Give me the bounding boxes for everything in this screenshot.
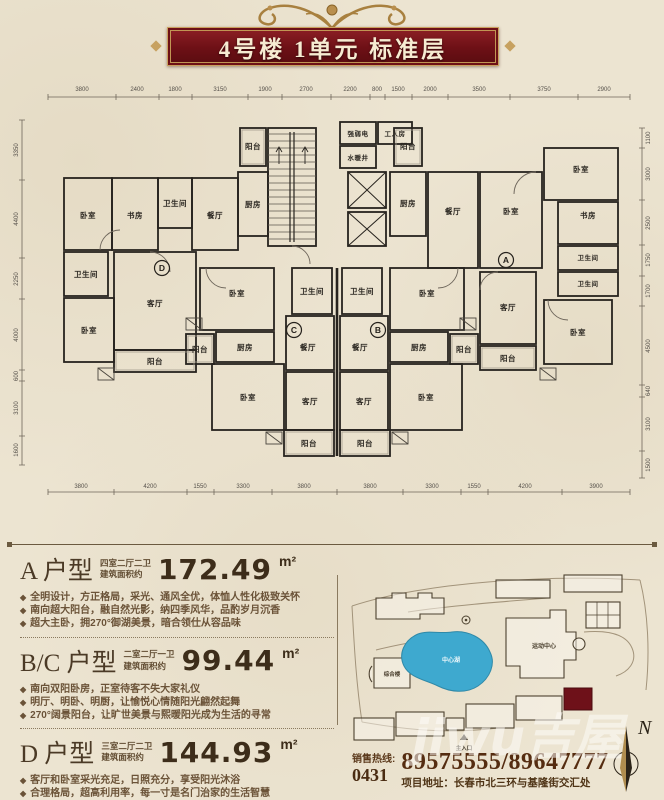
room-label-bedroom: 卧室 <box>81 325 97 335</box>
unit-spec-header: B/C 户型 二室二厅一卫 建筑面积约 99.44 m² <box>20 643 334 679</box>
unit-area-value: 144.93 <box>159 736 273 769</box>
unit-area-unit: m² <box>282 645 299 661</box>
room-label-bath: 卫生间 <box>300 286 324 296</box>
unit-spec-bc: B/C 户型 二室二厅一卫 建筑面积约 99.44 m² ◆南向双阳卧房，正室待… <box>20 643 334 723</box>
dim-label: 640 <box>646 385 652 396</box>
room-label-balcony: 阳台 <box>357 438 373 448</box>
unit-letter-c: C <box>291 325 297 335</box>
dim-label: 3800 <box>363 484 377 490</box>
unit-area-prefix: 建筑面积约 <box>124 661 175 672</box>
dim-label: 1500 <box>391 87 405 93</box>
room-label-study: 书房 <box>580 210 596 220</box>
title-banner: 4号楼 1单元 标准层 <box>167 27 499 66</box>
room-label-dining: 餐厅 <box>444 206 461 216</box>
north-label: N <box>637 717 653 739</box>
feature-item: ◆客厅和卧室采光充足，日照充分，享受阳光沐浴 <box>20 774 334 787</box>
section-divider <box>8 544 656 545</box>
feature-item: ◆合理格局，超高利用率，每一寸是名门治家的生活智慧 <box>20 787 334 800</box>
sports-center-label: 运动中心 <box>532 642 556 650</box>
door-arcs <box>100 172 568 320</box>
staircase <box>268 132 316 242</box>
unit-spec-d: D 户型 三室二厅二卫 建筑面积约 144.93 m² ◆客厅和卧室采光充足，日… <box>20 734 334 800</box>
feature-item: ◆南向超大阳台，融自然光影，纳四季风华，品酌岁月沉香 <box>20 604 334 617</box>
feature-item: ◆全明设计，方正格局，采光、通风全优，体恤人性化极致关怀 <box>20 591 334 604</box>
flyer-page: 4号楼 1单元 标准层 3800 2400 1800 3150 1900 270… <box>0 0 664 800</box>
unit-area-value: 99.44 <box>182 644 276 677</box>
room-label-bedroom: 卧室 <box>229 288 245 298</box>
unit-spec-header: A 户型 四室二厅二卫 建筑面积约 172.49 m² <box>20 551 334 587</box>
room-label-bedroom: 卧室 <box>573 164 589 174</box>
row-building <box>466 704 514 728</box>
unit-layout: 四室二厅二卫 <box>100 558 151 569</box>
dim-label: 3900 <box>589 484 603 490</box>
room-label-bedroom: 卧室 <box>80 210 96 220</box>
feature-item: ◆超大主卧，拥270°御湖美景，暗合领仕从容品味 <box>20 617 334 630</box>
dim-label: 2000 <box>423 87 437 93</box>
room-label-water: 水暖井 <box>348 153 369 162</box>
dim-label: 3750 <box>537 87 551 93</box>
dim-label: 3800 <box>74 484 88 490</box>
unit-spec-a: A 户型 四室二厅二卫 建筑面积约 172.49 m² ◆全明设计，方正格局，采… <box>20 551 334 631</box>
room-label-kitchen: 厨房 <box>237 342 253 352</box>
room-label-balcony: 阳台 <box>456 344 472 354</box>
feature-item: ◆明厅、明卧、明厨，让愉悦心情随阳光翩然起舞 <box>20 696 334 709</box>
unit-spec-header: D 户型 三室二厅二卫 建筑面积约 144.93 m² <box>20 734 334 770</box>
dim-label: 1500 <box>646 458 652 472</box>
room-label-bath: 卫生间 <box>74 269 98 279</box>
dim-label: 3800 <box>75 87 89 93</box>
unit-area-unit: m² <box>279 553 296 569</box>
elevator-shafts <box>348 172 386 246</box>
dotted-divider <box>20 637 334 638</box>
feature-text: 南向超大阳台，融自然光影，纳四季风华，品酌岁月沉香 <box>30 605 280 616</box>
page-title: 4号楼 1单元 标准层 <box>219 30 448 64</box>
unit-area-value: 172.49 <box>158 553 272 586</box>
room-label-bedroom: 卧室 <box>240 392 256 402</box>
dim-label: 3800 <box>297 484 311 490</box>
lake-label: 中心湖 <box>442 656 460 664</box>
hotline-label: 销售热线: <box>352 750 395 765</box>
feature-text: 全明设计，方正格局，采光、通风全优，体恤人性化极致关怀 <box>30 592 300 603</box>
diamond-bullet-icon: ◆ <box>20 711 26 720</box>
unit-letter-a: A <box>503 255 509 265</box>
room-label-kitchen: 厨房 <box>411 342 427 352</box>
room-label-balcony: 阳台 <box>301 438 317 448</box>
unit-name: D 户型 <box>20 734 94 770</box>
room-label-bedroom: 卧室 <box>419 288 435 298</box>
contact-block: 销售热线: 0431 89575555/89647777 项目地址：长春市北三环… <box>352 750 652 790</box>
dim-label: 4400 <box>14 212 20 226</box>
diamond-bullet-icon: ◆ <box>20 685 26 694</box>
room-label-bath: 卫生间 <box>578 253 599 262</box>
dim-label: 1700 <box>646 284 652 298</box>
phone-numbers: 89575555/89647777 <box>401 750 608 775</box>
dim-label: 1550 <box>193 484 207 490</box>
dim-label: 3000 <box>646 167 652 181</box>
row-building <box>354 718 394 740</box>
feature-text: 客厅和卧室采光充足，日照充分，享受阳光沐浴 <box>30 775 240 786</box>
diamond-bullet-icon: ◆ <box>20 698 26 707</box>
room-label-living: 客厅 <box>355 396 372 406</box>
area-code: 0431 <box>352 765 388 786</box>
dim-label: 3150 <box>213 87 227 93</box>
dimension-labels-bottom: 3800 4200 1550 3300 3800 3800 3300 1550 … <box>74 484 603 490</box>
dim-label: 2900 <box>597 87 611 93</box>
room-label-bath: 卫生间 <box>350 286 374 296</box>
building-6-outline <box>496 580 550 598</box>
room-label-balcony: 阳台 <box>500 353 516 363</box>
unit-letter-d: D <box>159 263 165 273</box>
dim-label: 2400 <box>130 87 144 93</box>
unit-subtitle: 二室二厅一卫 建筑面积约 <box>124 649 175 672</box>
feature-text: 南向双阳卧房，正室待客不失大家礼仪 <box>30 684 200 695</box>
dim-label: 4000 <box>14 328 20 342</box>
project-address: 项目地址：长春市北三环与基隆街交汇处 <box>401 775 608 790</box>
floorplan-drawing: 3800 2400 1800 3150 1900 2700 2200 800 1… <box>0 85 664 540</box>
row-building <box>396 712 444 736</box>
unit-area-prefix: 建筑面积约 <box>100 569 151 580</box>
dim-label: 1600 <box>14 443 20 457</box>
dim-label: 2500 <box>646 216 652 230</box>
feature-item: ◆270°阔景阳台，让旷世美景与熙暖阳光成为生活的寻常 <box>20 709 334 722</box>
feature-text: 明厅、明卧、明厨，让愉悦心情随阳光翩然起舞 <box>30 697 240 708</box>
dim-label: 1900 <box>258 87 272 93</box>
room-label-worker: 工人房 <box>385 129 406 138</box>
room-label-bath: 卫生间 <box>578 279 599 288</box>
diamond-bullet-icon: ◆ <box>20 776 26 785</box>
entrance-arrow-icon <box>460 734 468 740</box>
room-label-kitchen: 厨房 <box>245 199 261 209</box>
dim-label: 3100 <box>646 417 652 431</box>
room-label-kitchen: 厨房 <box>400 198 416 208</box>
dotted-divider <box>20 728 334 729</box>
dim-label: 1750 <box>646 253 652 267</box>
room-label-bath: 卫生间 <box>163 198 187 208</box>
dim-label: 2250 <box>14 272 20 286</box>
room-label-bedroom: 卧室 <box>570 327 586 337</box>
unit-subtitle: 四室二厅二卫 建筑面积约 <box>100 558 151 581</box>
feature-text: 超大主卧，拥270°御湖美景，暗合领仕从容品味 <box>30 618 241 629</box>
diamond-bullet-icon: ◆ <box>20 789 26 798</box>
dim-label: 1550 <box>467 484 481 490</box>
room-label-balcony: 阳台 <box>400 141 416 151</box>
unit-features: ◆南向双阳卧房，正室待客不失大家礼仪 ◆明厅、明卧、明厨，让愉悦心情随阳光翩然起… <box>20 683 334 723</box>
unit-layout: 二室二厅一卫 <box>124 649 175 660</box>
room-label-elec: 强弱电 <box>348 129 369 138</box>
diamond-bullet-icon: ◆ <box>20 606 26 615</box>
dimension-labels-right: 1100 3000 2500 1750 1700 4500 640 3100 1… <box>646 131 652 472</box>
room-label-living: 客厅 <box>146 298 163 308</box>
unit-area-prefix: 建筑面积约 <box>101 752 152 763</box>
dim-label: 4500 <box>646 339 652 353</box>
room-label-bedroom: 卧室 <box>503 206 519 216</box>
row-building <box>446 718 464 730</box>
room-label-dining: 餐厅 <box>351 342 368 352</box>
dim-label: 2200 <box>343 87 357 93</box>
room-label-dining: 餐厅 <box>206 210 223 220</box>
dim-label: 800 <box>372 87 383 93</box>
dim-label: 2700 <box>299 87 313 93</box>
unit-letter-b: B <box>375 325 381 335</box>
gold-scroll-ornament <box>212 0 452 30</box>
unit-specs-panel: A 户型 四室二厅二卫 建筑面积约 172.49 m² ◆全明设计，方正格局，采… <box>20 551 334 800</box>
unit-name: A 户型 <box>20 551 93 587</box>
room-label-study: 书房 <box>127 210 143 220</box>
diamond-bullet-icon: ◆ <box>20 593 26 602</box>
dim-label: 3300 <box>425 484 439 490</box>
dim-label: 1100 <box>646 131 652 145</box>
hotline-left: 销售热线: 0431 <box>352 750 395 790</box>
dimension-labels-top: 3800 2400 1800 3150 1900 2700 2200 800 1… <box>75 87 611 93</box>
unit-features: ◆全明设计，方正格局，采光、通风全优，体恤人性化极致关怀 ◆南向超大阳台，融自然… <box>20 591 334 631</box>
dim-label: 1800 <box>168 87 182 93</box>
unit-name: B/C 户型 <box>20 643 117 679</box>
dimension-labels-left: 3350 4400 2250 4000 600 3100 1600 <box>14 143 20 457</box>
feature-text: 270°阔景阳台，让旷世美景与熙暖阳光成为生活的寻常 <box>30 710 271 721</box>
ac-platforms <box>98 318 556 444</box>
unit-area-unit: m² <box>280 736 297 752</box>
unit-subtitle: 三室二厅二卫 建筑面积约 <box>101 741 152 764</box>
dim-label: 3500 <box>472 87 486 93</box>
highlighted-building-4 <box>564 688 592 710</box>
dim-label: 3300 <box>236 484 250 490</box>
dim-label: 4200 <box>143 484 157 490</box>
feature-text: 合理格局，超高利用率，每一寸是名门治家的生活智慧 <box>30 788 270 799</box>
dim-label: 4200 <box>518 484 532 490</box>
room-label-balcony: 阳台 <box>147 356 163 366</box>
dim-label: 3350 <box>14 143 20 157</box>
feature-item: ◆南向双阳卧房，正室待客不失大家礼仪 <box>20 683 334 696</box>
unit-features: ◆客厅和卧室采光充足，日照充分，享受阳光沐浴 ◆合理格局，超高利用率，每一寸是名… <box>20 774 334 800</box>
complex-building-label: 综合楼 <box>384 670 401 678</box>
column-divider <box>337 575 338 725</box>
room-label-balcony: 阳台 <box>192 344 208 354</box>
hotline-right: 89575555/89647777 项目地址：长春市北三环与基隆街交汇处 <box>401 750 608 790</box>
dim-label: 600 <box>14 370 20 381</box>
building-7-outline <box>564 575 622 592</box>
room-label-living: 客厅 <box>499 302 516 312</box>
diamond-bullet-icon: ◆ <box>20 619 26 628</box>
room-label-balcony: 阳台 <box>245 141 261 151</box>
row-building <box>516 696 562 720</box>
unit-layout: 三室二厅二卫 <box>101 741 152 752</box>
room-label-living: 客厅 <box>301 396 318 406</box>
room-label-dining: 餐厅 <box>299 342 316 352</box>
room-label-bedroom: 卧室 <box>418 392 434 402</box>
dim-label: 3100 <box>14 401 20 415</box>
